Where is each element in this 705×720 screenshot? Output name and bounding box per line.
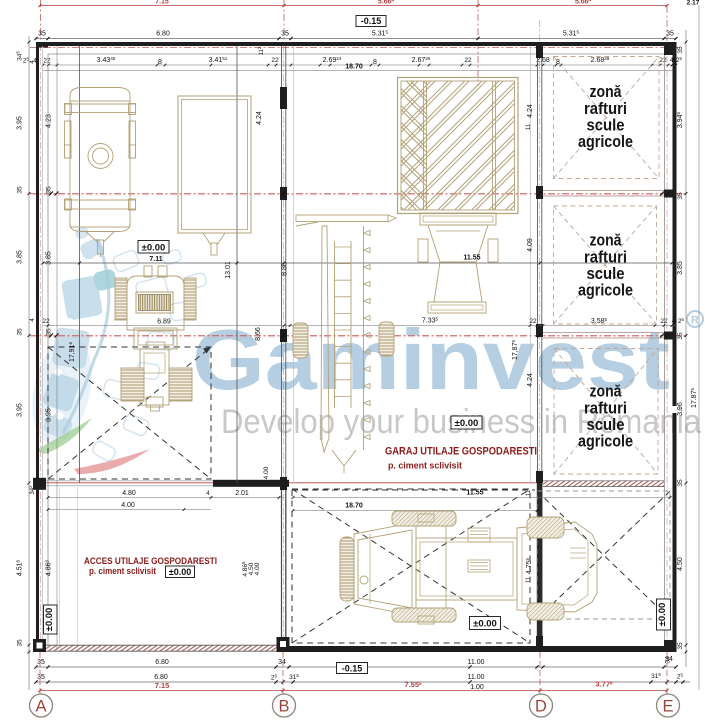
svg-text:±0.00: ±0.00 <box>44 608 55 632</box>
svg-text:11: 11 <box>526 123 532 130</box>
svg-text:4.50: 4.50 <box>677 557 684 571</box>
svg-text:34: 34 <box>665 656 673 663</box>
svg-text:4.09: 4.09 <box>527 238 534 252</box>
svg-text:4.23: 4.23 <box>46 114 53 128</box>
svg-text:2.17: 2.17 <box>687 0 700 7</box>
svg-text:D: D <box>535 698 547 716</box>
svg-text:35: 35 <box>37 659 45 666</box>
svg-text:-0.15: -0.15 <box>342 663 363 673</box>
svg-text:3.85: 3.85 <box>677 261 684 275</box>
svg-text:agricole: agricole <box>578 433 633 451</box>
svg-text:35: 35 <box>677 192 684 200</box>
svg-text:22: 22 <box>464 57 472 64</box>
svg-text:R: R <box>691 315 699 327</box>
svg-text:8.66: 8.66 <box>255 327 262 341</box>
svg-text:35: 35 <box>17 639 24 647</box>
svg-text:4.24: 4.24 <box>527 373 534 387</box>
svg-text:11.55: 11.55 <box>466 490 483 497</box>
svg-text:±0.00: ±0.00 <box>169 567 191 577</box>
svg-text:17,916: 17,916 <box>68 342 76 363</box>
svg-text:35: 35 <box>677 46 684 54</box>
svg-text:2.01: 2.01 <box>235 490 249 497</box>
svg-text:rafturi: rafturi <box>584 400 627 418</box>
svg-text:22: 22 <box>529 318 537 325</box>
svg-text:11.00: 11.00 <box>468 659 485 666</box>
svg-text:±0.00: ±0.00 <box>657 603 668 627</box>
svg-text:35: 35 <box>17 328 24 336</box>
svg-text:rafturi: rafturi <box>584 100 627 118</box>
svg-text:35: 35 <box>17 186 24 194</box>
svg-text:scule: scule <box>587 117 625 135</box>
svg-text:scule: scule <box>587 416 625 434</box>
svg-text:6.80: 6.80 <box>154 674 168 681</box>
svg-text:agricole: agricole <box>578 133 633 151</box>
svg-text:4.24: 4.24 <box>256 111 263 125</box>
svg-text:22: 22 <box>659 57 667 64</box>
svg-text:8.86: 8.86 <box>282 262 289 276</box>
svg-text:3.85: 3.85 <box>46 251 53 265</box>
svg-text:6.89: 6.89 <box>157 319 171 326</box>
svg-text:3.95: 3.95 <box>46 408 53 422</box>
svg-text:-0.15: -0.15 <box>361 16 382 26</box>
svg-text:2.68: 2.68 <box>536 57 550 64</box>
svg-text:E: E <box>662 698 673 716</box>
svg-text:35: 35 <box>666 31 674 38</box>
svg-text:35: 35 <box>281 31 289 38</box>
svg-text:7.15: 7.15 <box>155 681 170 690</box>
svg-text:11.55: 11.55 <box>463 255 480 262</box>
svg-text:±0.00: ±0.00 <box>142 242 166 253</box>
svg-text:22: 22 <box>42 318 50 325</box>
svg-text:11.00: 11.00 <box>468 674 485 681</box>
svg-text:B: B <box>278 698 289 716</box>
svg-text:3.95: 3.95 <box>17 403 24 417</box>
svg-text:6.80: 6.80 <box>156 31 170 38</box>
svg-text:11: 11 <box>526 489 532 496</box>
svg-text:zonă: zonă <box>590 383 623 401</box>
svg-text:3.96: 3.96 <box>677 402 684 416</box>
svg-text:22: 22 <box>43 58 51 65</box>
svg-text:GARAJ UTILAJE GOSPODARESTI: GARAJ UTILAJE GOSPODARESTI <box>385 446 537 458</box>
svg-text:3.85: 3.85 <box>17 250 24 264</box>
svg-text:4.00: 4.00 <box>121 502 135 509</box>
svg-text:22: 22 <box>271 57 279 64</box>
svg-text:p. ciment sclivisit: p. ciment sclivisit <box>89 566 156 576</box>
svg-text:4.24: 4.24 <box>527 104 534 118</box>
svg-text:18.70: 18.70 <box>345 503 363 510</box>
svg-text:ACCES UTILAJE GOSPODARESTI: ACCES UTILAJE GOSPODARESTI <box>84 556 217 566</box>
svg-text:35: 35 <box>677 642 684 650</box>
svg-text:35: 35 <box>38 31 46 38</box>
svg-text:zonă: zonă <box>590 83 623 101</box>
svg-text:8: 8 <box>158 59 162 66</box>
svg-text:17.875: 17.875 <box>690 388 698 409</box>
svg-text:agricole: agricole <box>578 282 633 300</box>
svg-text:6.80: 6.80 <box>155 659 169 666</box>
svg-text:8: 8 <box>373 59 377 66</box>
svg-text:±0.00: ±0.00 <box>473 619 497 630</box>
svg-text:A: A <box>35 698 46 716</box>
svg-text:zonă: zonă <box>590 232 623 250</box>
svg-text:18.70: 18.70 <box>345 64 363 71</box>
svg-text:scule: scule <box>587 265 625 283</box>
svg-text:11: 11 <box>526 576 532 583</box>
svg-text:rafturi: rafturi <box>584 249 627 267</box>
svg-text:35: 35 <box>37 674 45 681</box>
svg-text:7.11: 7.11 <box>149 256 162 263</box>
svg-text:4.00: 4.00 <box>254 562 261 575</box>
svg-text:4.80: 4.80 <box>122 490 136 497</box>
svg-text:p. ciment sclivisit: p. ciment sclivisit <box>388 461 463 472</box>
svg-text:22: 22 <box>660 318 668 325</box>
svg-text:7.15: 7.15 <box>155 0 169 6</box>
svg-text:13.01: 13.01 <box>225 261 232 279</box>
svg-text:±0.00: ±0.00 <box>455 418 479 429</box>
svg-text:3.95: 3.95 <box>17 116 24 130</box>
svg-text:35: 35 <box>677 479 684 487</box>
svg-text:4.00: 4.00 <box>263 466 270 479</box>
svg-text:1.00: 1.00 <box>470 684 484 691</box>
svg-text:35: 35 <box>677 332 684 340</box>
svg-text:17,875: 17,875 <box>511 340 519 361</box>
svg-text:34: 34 <box>278 659 286 666</box>
